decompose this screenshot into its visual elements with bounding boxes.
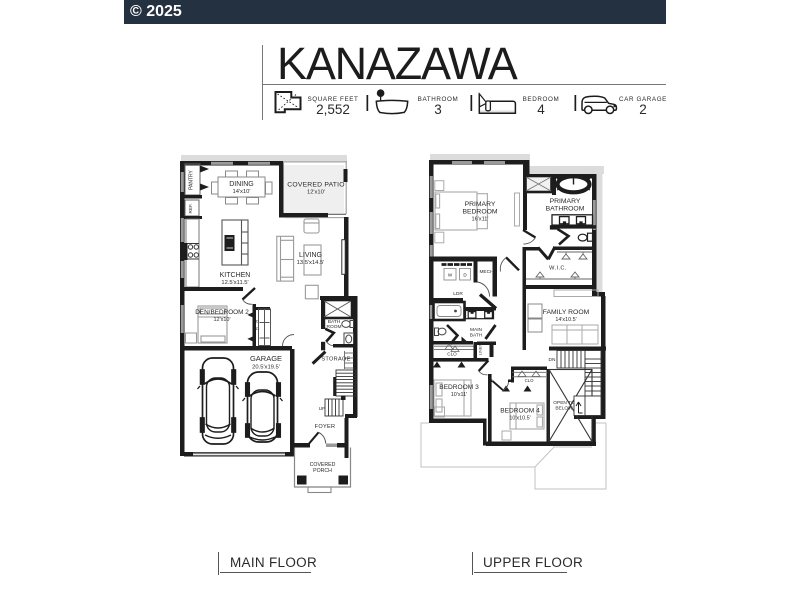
svg-text:BATHROOM: BATHROOM: [546, 206, 585, 213]
svg-text:STORAGE: STORAGE: [321, 357, 350, 363]
svg-text:FOYER: FOYER: [315, 424, 336, 430]
svg-text:BATH: BATH: [470, 333, 483, 339]
svg-text:CLO: CLO: [447, 352, 457, 357]
svg-text:KITCHEN: KITCHEN: [220, 272, 251, 279]
svg-text:16'x11': 16'x11': [472, 217, 489, 223]
svg-text:REF.: REF.: [188, 204, 193, 214]
svg-text:BEDROOM: BEDROOM: [462, 209, 497, 216]
svg-text:W.I.C.: W.I.C.: [549, 266, 567, 272]
svg-text:14'x10.5': 14'x10.5': [555, 317, 576, 323]
svg-text:DN: DN: [549, 357, 556, 363]
svg-text:MAIN: MAIN: [470, 327, 483, 333]
svg-text:PRIMARY: PRIMARY: [465, 201, 496, 208]
svg-text:FAMILY ROOM: FAMILY ROOM: [543, 309, 590, 316]
svg-text:20.5'x19.5': 20.5'x19.5': [252, 365, 280, 371]
svg-text:OPEN TO: OPEN TO: [553, 400, 575, 406]
svg-text:14'x10': 14'x10': [232, 189, 250, 195]
svg-text:13.5'x14.5': 13.5'x14.5': [297, 260, 325, 266]
svg-text:DEN/BEDROOM 2: DEN/BEDROOM 2: [195, 309, 249, 316]
svg-text:PANTRY: PANTRY: [189, 169, 195, 189]
svg-text:W: W: [448, 273, 453, 278]
svg-text:CLO: CLO: [525, 378, 534, 383]
svg-text:GARAGE: GARAGE: [250, 354, 282, 363]
svg-text:UP: UP: [319, 406, 326, 412]
svg-text:D: D: [256, 319, 259, 324]
svg-text:COVERED PATIO: COVERED PATIO: [287, 182, 345, 189]
svg-text:LDR: LDR: [453, 291, 463, 297]
svg-text:PORCH: PORCH: [313, 468, 332, 474]
svg-text:12'x10': 12'x10': [307, 190, 325, 196]
svg-text:LIVING: LIVING: [299, 252, 322, 259]
svg-text:12'x10': 12'x10': [213, 317, 230, 323]
svg-text:10'x11': 10'x11': [451, 392, 467, 398]
svg-text:12.5'x11.5': 12.5'x11.5': [221, 280, 248, 286]
svg-text:PRIMARY: PRIMARY: [550, 198, 581, 205]
svg-text:10'x10.5': 10'x10.5': [509, 416, 530, 422]
svg-text:DINING: DINING: [229, 181, 254, 188]
svg-text:MECH: MECH: [479, 269, 494, 275]
svg-text:D: D: [463, 273, 467, 278]
svg-text:BELOW: BELOW: [555, 406, 573, 412]
svg-text:D: D: [256, 326, 259, 331]
svg-text:BEDROOM 3: BEDROOM 3: [439, 384, 479, 391]
svg-text:BEDROOM 4: BEDROOM 4: [500, 408, 540, 415]
svg-text:LINEN: LINEN: [478, 343, 483, 355]
